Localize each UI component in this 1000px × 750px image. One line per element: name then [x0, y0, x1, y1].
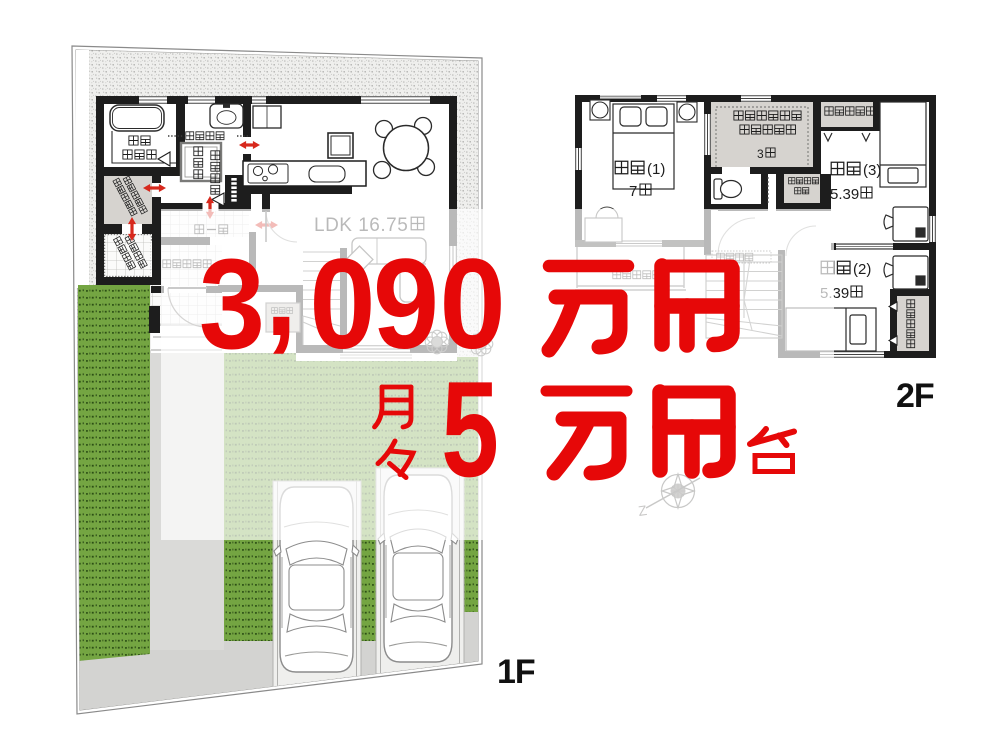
svg-text:2F: 2F	[896, 377, 934, 415]
svg-text:(1): (1)	[647, 161, 665, 178]
svg-text:3: 3	[757, 147, 764, 161]
svg-text:7: 7	[629, 183, 637, 200]
svg-text:1F: 1F	[497, 653, 535, 691]
svg-text:5: 5	[441, 352, 499, 505]
svg-text:(2): (2)	[853, 261, 871, 278]
svg-text:,: ,	[265, 224, 297, 361]
svg-text:(3): (3)	[863, 162, 881, 179]
svg-text:5.39: 5.39	[830, 186, 859, 203]
